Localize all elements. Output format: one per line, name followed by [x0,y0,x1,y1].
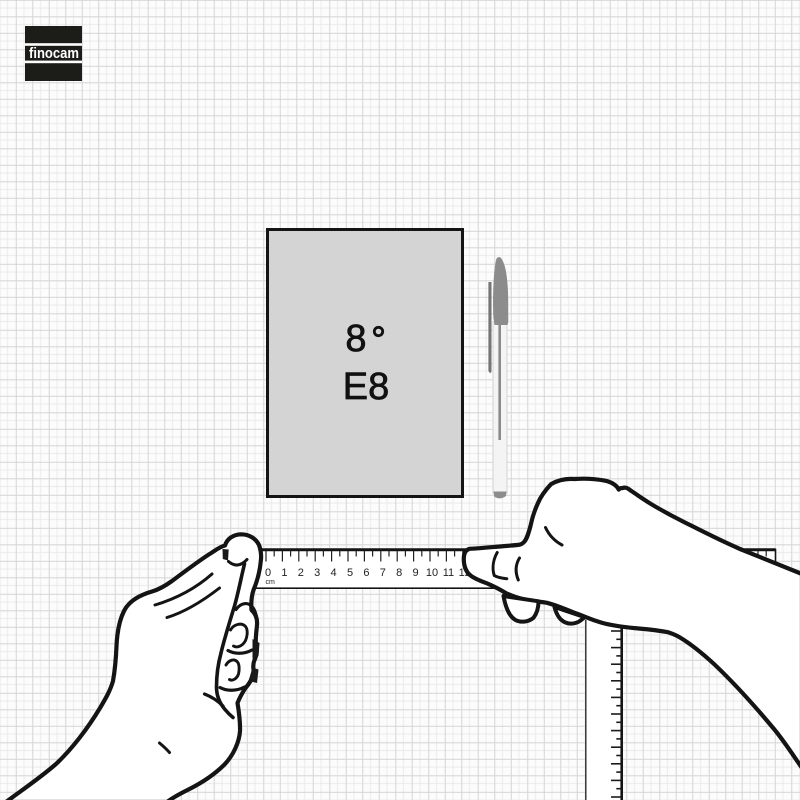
svg-text:8: 8 [396,567,402,579]
svg-text:5: 5 [347,567,353,579]
svg-text:8: 8 [345,318,366,360]
svg-text:10: 10 [426,567,438,579]
svg-text:11: 11 [443,567,454,579]
svg-text:0: 0 [265,567,271,579]
svg-text:E8: E8 [343,366,389,408]
svg-text:3: 3 [314,567,320,579]
svg-text:7: 7 [380,567,386,579]
svg-text:2: 2 [298,567,304,579]
svg-text:9: 9 [413,567,419,579]
svg-text:1: 1 [281,567,287,579]
svg-text:4: 4 [331,567,337,579]
svg-text:cm: cm [266,579,276,586]
svg-text:6: 6 [363,567,369,579]
svg-text:finocam: finocam [29,45,79,62]
